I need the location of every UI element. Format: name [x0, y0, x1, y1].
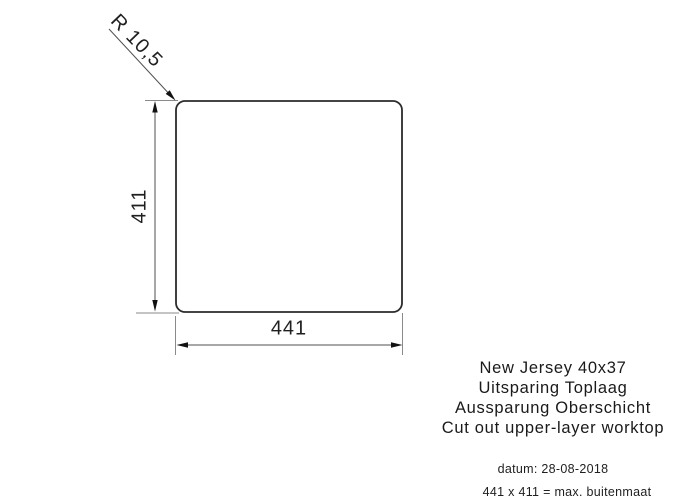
title-block: New Jersey 40x37 Uitsparing Toplaag Auss… [442, 358, 665, 438]
width-dimension-label: 441 [271, 318, 307, 341]
dim-arrow-down-icon [152, 300, 157, 312]
product-name: New Jersey 40x37 [442, 358, 665, 378]
dim-arrow-left-icon [177, 342, 189, 347]
max-outer-size-note: 441 x 411 = max. buitenmaat [483, 485, 652, 499]
description-de: Aussparung Oberschicht [442, 398, 665, 418]
date-note: datum: 28-08-2018 [498, 462, 609, 476]
technical-drawing-page: R 10,5 411 441 New Jersey 40x37 Uitspari… [0, 0, 680, 504]
height-dimension-label: 411 [129, 189, 152, 224]
dim-arrow-right-icon [391, 342, 403, 347]
dim-arrow-up-icon [152, 101, 157, 113]
cutout-rect [176, 101, 402, 312]
description-nl: Uitsparing Toplaag [442, 378, 665, 398]
description-en: Cut out upper-layer worktop [442, 418, 665, 438]
